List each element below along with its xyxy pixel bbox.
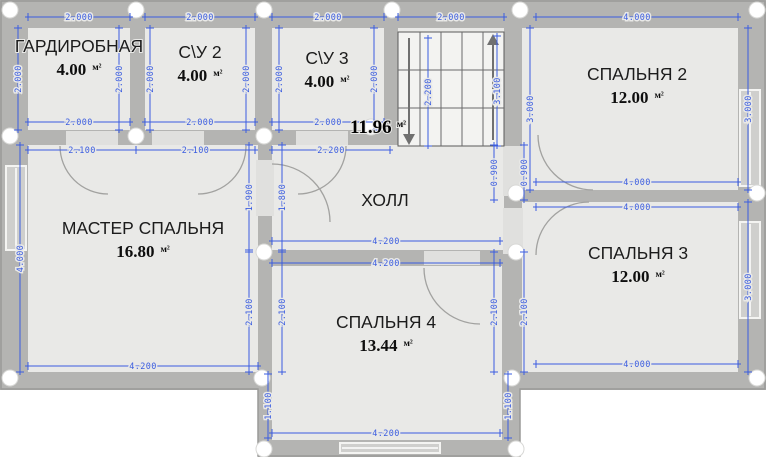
dim-label: 3.000 [526, 95, 536, 123]
column-marker [504, 370, 520, 386]
room-name-bathroom-2: С\У 2 [178, 42, 221, 62]
dim-label: 2.200 [317, 146, 345, 156]
window-bedroom-3-right [740, 222, 760, 318]
dim-label: 2.000 [242, 65, 252, 93]
room-name-master-bedroom: МАСТЕР СПАЛЬНЯ [62, 218, 224, 238]
dim-label: 2.000 [186, 13, 214, 23]
dim-label: 2.100 [278, 298, 288, 326]
dim-label: 2.000 [314, 118, 342, 128]
room-name-bedroom-4: СПАЛЬНЯ 4 [336, 312, 436, 332]
dim-label: 2.000 [65, 118, 93, 128]
window-bedroom-4-bottom [340, 443, 440, 453]
floor-bedroom-3 [522, 202, 738, 372]
dim-label: 4.200 [372, 429, 400, 439]
dim-label: 1.100 [264, 392, 274, 420]
column-marker [512, 2, 528, 18]
dim-label: 2.000 [275, 65, 285, 93]
dim-label: 0.900 [490, 159, 500, 187]
dim-label: 2.000 [146, 65, 156, 93]
dim-label: 2.100 [245, 298, 255, 326]
dim-label: 2.200 [424, 78, 434, 106]
floor-bedroom-2 [522, 28, 738, 190]
column-marker [256, 441, 272, 457]
dim-label: 4.000 [623, 13, 651, 23]
column-marker [256, 2, 272, 18]
dim-label: 1.100 [504, 392, 514, 420]
window-master-left [6, 166, 26, 250]
dim-label: 4.200 [372, 237, 400, 247]
dim-label: 4.000 [623, 360, 651, 370]
floor-plan-page: 2.0002.0002.0002.0004.0002.0002.0002.000… [0, 0, 766, 457]
column-marker [749, 2, 765, 18]
dim-label: 4.200 [372, 259, 400, 269]
room-name-wardrobe: ГАРДИРОБНАЯ [15, 36, 143, 56]
dim-label: 3.100 [493, 77, 503, 105]
column-marker [508, 185, 524, 201]
dim-label: 2.000 [14, 65, 24, 93]
dim-label: 2.000 [437, 13, 465, 23]
column-marker [256, 244, 272, 260]
dim-label: 2.100 [182, 146, 210, 156]
column-marker [2, 2, 18, 18]
dim-label: 1.800 [278, 184, 288, 212]
dim-label: 1.900 [245, 184, 255, 212]
dim-label: 3.000 [744, 273, 754, 301]
staircase [398, 32, 504, 146]
column-marker [508, 441, 524, 457]
room-name-bedroom-2: СПАЛЬНЯ 2 [587, 64, 687, 84]
dim-label: 4.000 [623, 203, 651, 213]
room-name-bedroom-3: СПАЛЬНЯ 3 [588, 243, 688, 263]
column-marker [2, 370, 18, 386]
dim-label: 2.100 [490, 298, 500, 326]
dim-label: 3.000 [744, 95, 754, 123]
dim-label: 2.000 [370, 65, 380, 93]
dim-label: 2.000 [115, 65, 125, 93]
dim-label: 2.000 [314, 13, 342, 23]
room-name-hall: ХОЛЛ [361, 190, 408, 210]
dim-label: 2.000 [65, 13, 93, 23]
dim-label: 2.100 [68, 146, 96, 156]
floor-plan-drawing: 2.0002.0002.0002.0004.0002.0002.0002.000… [0, 0, 766, 457]
column-marker [256, 128, 272, 144]
dim-label: 4.000 [16, 245, 26, 273]
column-marker [749, 185, 765, 201]
room-name-bathroom-3: С\У 3 [305, 48, 348, 68]
dim-label: 2.100 [520, 298, 530, 326]
dim-label: 4.000 [623, 178, 651, 188]
dim-label: 0.900 [520, 159, 530, 187]
dim-label: 2.000 [186, 118, 214, 128]
dim-label: 4.200 [129, 362, 157, 372]
column-marker [128, 128, 144, 144]
